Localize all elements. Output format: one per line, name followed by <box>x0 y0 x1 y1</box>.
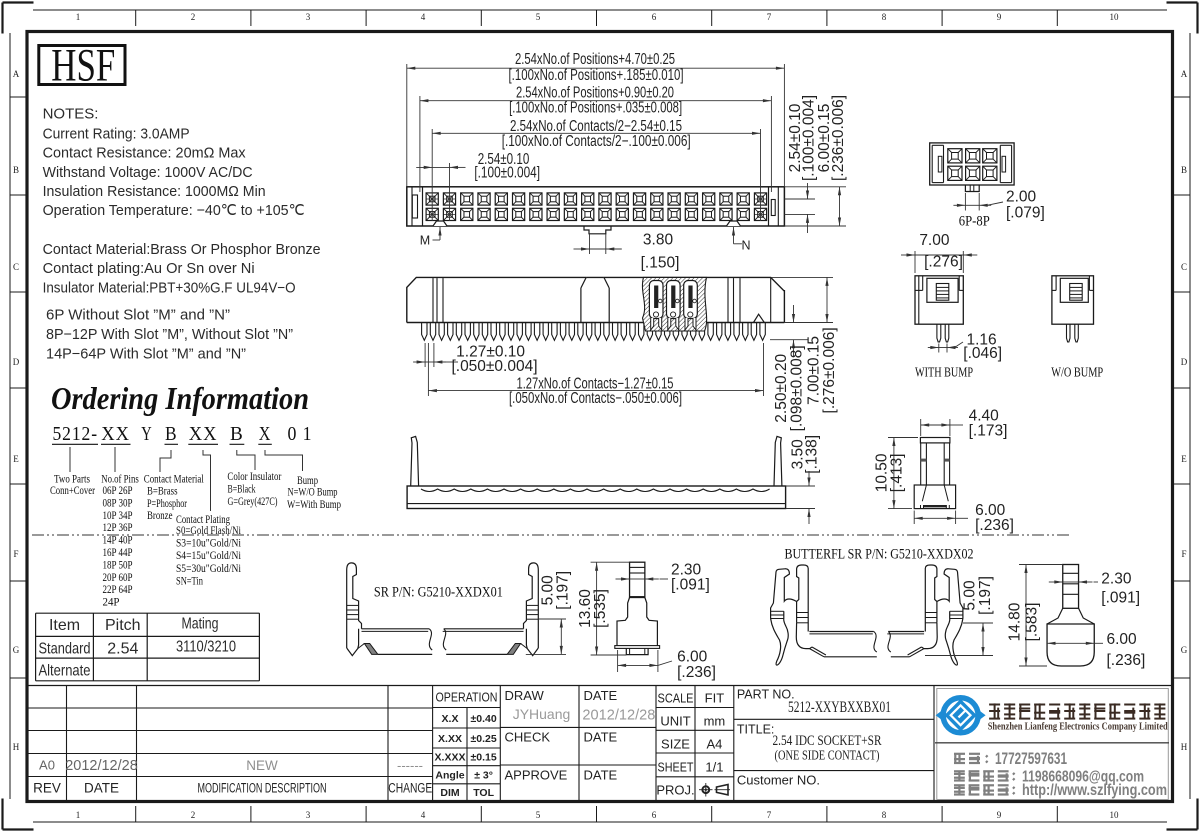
svg-text:Contact Material:Brass Or P: Contact Material:Brass Or Phosphor Bronz… <box>43 241 321 258</box>
svg-text:N: N <box>741 239 750 253</box>
svg-text:3.80: 3.80 <box>643 232 674 249</box>
svg-text:Insulator Material:PBT+30%G.F: Insulator Material:PBT+30%G.F UL94V−O <box>43 280 296 297</box>
svg-text:REV: REV <box>33 781 61 796</box>
svg-text:Contact Resistance: 20mΩ Ma: Contact Resistance: 20mΩ Max <box>43 145 246 162</box>
svg-text:[.100xNo.of Contacts/2−.100±0: [.100xNo.of Contacts/2−.100±0.006] <box>502 133 691 150</box>
svg-text:[.236]: [.236] <box>677 664 716 681</box>
svg-text:5.00: 5.00 <box>962 580 979 611</box>
svg-text:F: F <box>13 549 18 559</box>
svg-text:A: A <box>1181 69 1188 79</box>
svg-text:H: H <box>1181 742 1188 752</box>
svg-text:5: 5 <box>536 810 541 820</box>
svg-text:2: 2 <box>191 810 196 820</box>
svg-text:M: M <box>420 234 430 248</box>
svg-text:WITH BUMP: WITH BUMP <box>915 365 973 380</box>
svg-text:8: 8 <box>882 810 887 820</box>
svg-text:2.54xNo.of Positions+4.70±0.2: 2.54xNo.of Positions+4.70±0.25 <box>515 51 675 68</box>
svg-text:SR P/N: G5210-XXDX01: SR P/N: G5210-XXDX01 <box>374 585 503 601</box>
svg-text:2012/12/28: 2012/12/28 <box>65 758 138 774</box>
svg-text:[.100xNo.of Positions+.035±0.: [.100xNo.of Positions+.035±0.008] <box>509 100 682 117</box>
svg-text:XX: XX <box>101 424 130 445</box>
svg-text:SCALE: SCALE <box>658 691 694 706</box>
svg-text:[.535]: [.535] <box>592 589 609 628</box>
svg-text:2012/12/28: 2012/12/28 <box>582 707 655 724</box>
svg-text:Item: Item <box>49 617 80 634</box>
svg-text:SN=Tin: SN=Tin <box>176 573 203 587</box>
svg-text:8P−12P With Slot ”M”, With: 8P−12P With Slot ”M”, Without Slot ”N” <box>46 326 293 343</box>
svg-text:7: 7 <box>767 12 772 22</box>
svg-text:[.091]: [.091] <box>671 577 710 594</box>
svg-text:JYHuang: JYHuang <box>513 706 571 722</box>
svg-text:APPROVE: APPROVE <box>505 768 568 783</box>
svg-text:6P Without Slot ”M” and ”: 6P Without Slot ”M” and ”N” <box>46 307 230 324</box>
svg-text:6: 6 <box>652 12 657 22</box>
svg-text:5: 5 <box>536 12 541 22</box>
svg-text:TITLE:: TITLE: <box>737 722 775 736</box>
svg-text:SHEET: SHEET <box>658 760 694 775</box>
svg-text:8: 8 <box>882 12 887 22</box>
svg-text:X: X <box>259 424 272 445</box>
svg-text:D: D <box>13 357 20 367</box>
svg-text:A4: A4 <box>706 737 722 752</box>
svg-text:B: B <box>1181 165 1187 175</box>
svg-text:[.091]: [.091] <box>1101 590 1140 607</box>
svg-text:4: 4 <box>421 810 426 820</box>
svg-text:DATE: DATE <box>584 688 618 703</box>
svg-text:3: 3 <box>306 810 311 820</box>
svg-text:C: C <box>13 262 19 272</box>
svg-text:3: 3 <box>306 12 311 22</box>
svg-text:0 1: 0 1 <box>288 424 313 445</box>
svg-text:1: 1 <box>76 810 81 820</box>
svg-text:[.236]: [.236] <box>975 517 1014 534</box>
svg-text:[.100xNo.of Positions+.185±0.: [.100xNo.of Positions+.185±0.010] <box>509 67 684 84</box>
svg-text:Pitch: Pitch <box>105 617 141 634</box>
svg-text:10: 10 <box>1110 810 1120 820</box>
svg-text:[.276±0.006]: [.276±0.006] <box>821 327 838 413</box>
svg-text:Withstand Voltage: 1000V AC: Withstand Voltage: 1000V AC/DC <box>43 164 253 181</box>
svg-text:B: B <box>165 424 178 445</box>
svg-text:17727597631: 17727597631 <box>995 750 1067 768</box>
svg-text:Angle: Angle <box>435 770 464 782</box>
svg-text:1/1: 1/1 <box>705 760 723 775</box>
svg-text:6.00: 6.00 <box>1107 631 1138 648</box>
svg-text:Standard: Standard <box>39 641 91 658</box>
svg-text:7.00: 7.00 <box>919 232 950 249</box>
svg-text:14P−64P With Slot ”M” and: 14P−64P With Slot ”M” and ”N” <box>46 346 246 363</box>
svg-text:FIT: FIT <box>705 691 725 706</box>
svg-text:(ONE SIDE CONTACT): (ONE SIDE CONTACT) <box>775 748 880 763</box>
svg-text:14.80: 14.80 <box>1006 602 1023 641</box>
svg-text:±0.15: ±0.15 <box>470 752 496 764</box>
svg-text:[.413]: [.413] <box>889 454 906 493</box>
svg-text:1: 1 <box>76 12 81 22</box>
svg-text:D: D <box>1181 357 1188 367</box>
svg-text:NOTES:: NOTES: <box>43 106 99 123</box>
svg-text:G: G <box>1181 645 1188 655</box>
svg-text:± 3°: ± 3° <box>474 770 493 782</box>
svg-text:mm: mm <box>704 714 726 729</box>
svg-text:6P-8P: 6P-8P <box>959 214 990 230</box>
svg-text:[.236]: [.236] <box>1107 652 1146 669</box>
svg-text:CHANGE: CHANGE <box>388 781 432 796</box>
svg-text:A0: A0 <box>39 758 55 773</box>
svg-text:CHECK: CHECK <box>505 730 551 745</box>
svg-text:[.100±0.004]: [.100±0.004] <box>474 165 540 182</box>
svg-text:Shenzhen Lianfeng Electronics: Shenzhen Lianfeng Electronics Company Li… <box>988 722 1168 733</box>
svg-text:X.X: X.X <box>442 713 459 725</box>
svg-text:Conn+Cover: Conn+Cover <box>50 483 95 497</box>
svg-text:X.XXX: X.XXX <box>435 752 466 764</box>
svg-text:DATE: DATE <box>584 768 618 783</box>
svg-text:[.100±0.004]: [.100±0.004] <box>801 95 818 181</box>
svg-text:DIM: DIM <box>440 787 460 799</box>
svg-text:E: E <box>1181 454 1187 464</box>
svg-text:XX: XX <box>189 424 218 445</box>
svg-text:F: F <box>1181 549 1186 559</box>
svg-text:2.50±0.20: 2.50±0.20 <box>773 354 790 423</box>
svg-text:[.098±0.008]: [.098±0.008] <box>789 345 806 431</box>
svg-text:5212-XXYBXXBX01: 5212-XXYBXXBX01 <box>788 699 891 716</box>
svg-text:------: ------ <box>397 758 423 773</box>
svg-text:[.079]: [.079] <box>1006 204 1045 221</box>
svg-text:[.150]: [.150] <box>641 255 680 272</box>
svg-text:MODIFICATION DESCRIPTION: MODIFICATION DESCRIPTION <box>198 781 327 796</box>
svg-text:UNIT: UNIT <box>660 714 690 729</box>
svg-text:7.00±0.15: 7.00±0.15 <box>806 336 823 405</box>
svg-text:[.236±0.006]: [.236±0.006] <box>830 95 847 181</box>
svg-text:3110/3210: 3110/3210 <box>176 639 236 656</box>
svg-text:B: B <box>230 424 244 445</box>
svg-text:2.00: 2.00 <box>1006 189 1037 206</box>
svg-text:SIZE: SIZE <box>661 737 690 752</box>
svg-text:[.046]: [.046] <box>963 345 1002 362</box>
svg-text:±0.25: ±0.25 <box>470 733 496 745</box>
svg-text:±0.40: ±0.40 <box>470 713 496 725</box>
svg-text:Bronze: Bronze <box>147 508 173 522</box>
svg-text:A: A <box>13 69 20 79</box>
svg-text:[.173]: [.173] <box>969 423 1008 440</box>
svg-text:G=Grey(427C): G=Grey(427C) <box>228 494 278 508</box>
svg-text:10: 10 <box>1110 12 1120 22</box>
svg-text:7: 7 <box>767 810 772 820</box>
svg-text:Mating: Mating <box>182 616 219 633</box>
svg-text:Ordering Information: Ordering Information <box>51 381 309 416</box>
svg-text:2: 2 <box>191 12 196 22</box>
svg-text:B: B <box>13 165 19 175</box>
svg-text:Insulation Resistance: 1000M: Insulation Resistance: 1000MΩ Min <box>43 183 266 200</box>
svg-text:W=With Bump: W=With Bump <box>287 497 341 511</box>
svg-text:TOL: TOL <box>473 787 494 799</box>
svg-text:9: 9 <box>997 810 1002 820</box>
svg-text:BUTTERFL SR P/N: G5210-XXDX02: BUTTERFL SR P/N: G5210-XXDX02 <box>785 547 974 563</box>
svg-text:2.54: 2.54 <box>107 641 138 658</box>
svg-text:Alternate: Alternate <box>39 663 91 680</box>
svg-text:2.30: 2.30 <box>1101 571 1132 588</box>
svg-text:24P: 24P <box>103 595 120 609</box>
svg-text:2.54 IDC SOCKET+SR: 2.54 IDC SOCKET+SR <box>773 733 882 749</box>
svg-text:Y: Y <box>141 424 152 445</box>
svg-text:[.050±0.004]: [.050±0.004] <box>451 358 537 375</box>
svg-text:[.583]: [.583] <box>1024 603 1041 642</box>
svg-text:Operation Temperature: −40℃: Operation Temperature: −40℃ to +105℃ <box>43 202 305 219</box>
svg-text:[.050xNo.of Contacts−.050±0.0: [.050xNo.of Contacts−.050±0.006] <box>509 390 682 407</box>
svg-text:DATE: DATE <box>84 781 119 796</box>
svg-text:Contact plating:Au Or Sn o: Contact plating:Au Or Sn over Ni <box>43 260 255 277</box>
svg-text:[.276]: [.276] <box>924 254 963 271</box>
svg-text:Current Rating: 3.0AMP: Current Rating: 3.0AMP <box>43 126 190 143</box>
svg-text:Customer NO.: Customer NO. <box>737 772 820 787</box>
svg-text:6: 6 <box>652 810 657 820</box>
svg-text:DRAW: DRAW <box>505 688 545 703</box>
svg-text:E: E <box>13 454 19 464</box>
svg-text:NEW: NEW <box>246 758 278 773</box>
svg-text:9: 9 <box>997 12 1002 22</box>
svg-text:4: 4 <box>421 12 426 22</box>
svg-text:5212-: 5212- <box>53 424 99 445</box>
svg-text:G: G <box>13 645 20 655</box>
svg-text:http://www.szlfying.com: http://www.szlfying.com <box>1022 782 1167 799</box>
svg-text:PART NO.: PART NO. <box>737 688 795 702</box>
svg-text:PROJ.: PROJ. <box>656 783 694 798</box>
svg-text:DATE: DATE <box>584 730 618 745</box>
svg-text:HSF: HSF <box>51 40 115 92</box>
svg-text:[.197]: [.197] <box>977 576 994 615</box>
svg-text:[.138]: [.138] <box>804 435 821 474</box>
svg-text:X.XX: X.XX <box>438 733 462 745</box>
svg-text:W/O BUMP: W/O BUMP <box>1051 365 1103 380</box>
svg-text:C: C <box>1181 262 1187 272</box>
svg-text:H: H <box>13 742 20 752</box>
svg-text:6.00: 6.00 <box>677 649 708 666</box>
svg-text:OPERATION: OPERATION <box>436 691 498 705</box>
svg-text:[.197]: [.197] <box>555 571 572 610</box>
